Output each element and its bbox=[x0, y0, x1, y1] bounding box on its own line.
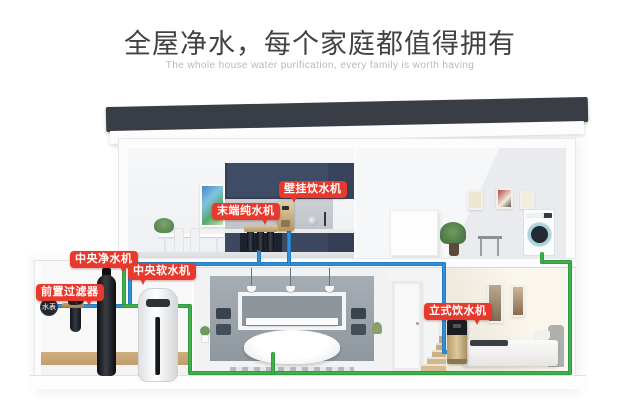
central-softener-unit bbox=[138, 288, 178, 382]
vanity-shelf bbox=[246, 318, 338, 325]
washer-panel bbox=[526, 213, 552, 218]
prefilter-bowl bbox=[70, 308, 81, 332]
plant-pot bbox=[201, 335, 209, 343]
wall-mounted-dispenser bbox=[277, 202, 294, 231]
door-handle bbox=[416, 322, 419, 325]
wall-picture bbox=[467, 190, 483, 210]
bathtub bbox=[244, 330, 340, 364]
laundry-room bbox=[356, 148, 566, 258]
plant-icon bbox=[440, 222, 466, 244]
ro-cartridge bbox=[267, 232, 274, 251]
wall-picture bbox=[496, 188, 513, 209]
softener-head-band bbox=[146, 299, 170, 307]
callout-terminal-purifier: 末端纯水机 bbox=[212, 203, 280, 220]
bathroom bbox=[194, 268, 390, 375]
callout-central-softener: 中央软水机 bbox=[128, 263, 196, 280]
washer-door bbox=[528, 223, 551, 246]
wall-picture bbox=[511, 285, 525, 317]
stair-step bbox=[427, 357, 446, 364]
page-subtitle: The whole house water purification, ever… bbox=[0, 60, 640, 71]
pipe-green-washer-nub bbox=[540, 252, 544, 264]
faucet-icon bbox=[324, 212, 326, 226]
pipe-green-top-right-run bbox=[540, 260, 572, 264]
pipe-green-bottom-run bbox=[188, 371, 572, 375]
pipe-blue-wall-unit-riser bbox=[287, 229, 291, 266]
partition-cabinet bbox=[390, 210, 438, 256]
ro-manifold bbox=[244, 225, 278, 232]
dispenser-base bbox=[447, 359, 467, 364]
chair bbox=[190, 228, 200, 253]
stool-leg bbox=[480, 239, 482, 256]
plant-icon bbox=[154, 218, 174, 233]
washing-machine bbox=[523, 209, 555, 256]
callout-floor-dispenser: 立式饮水机 bbox=[424, 303, 492, 320]
stool-leg bbox=[497, 239, 499, 256]
softener-brine-slot bbox=[155, 317, 160, 375]
pendant-lamp bbox=[251, 268, 252, 286]
towel-rack bbox=[216, 308, 231, 319]
water-meter-label: 水表 bbox=[42, 302, 56, 312]
dispenser-screen bbox=[282, 206, 289, 210]
pipe-green-riser-right bbox=[568, 260, 572, 375]
bed-pillow bbox=[534, 330, 550, 340]
callout-wall-dispenser: 壁挂饮水机 bbox=[279, 181, 347, 198]
ro-cartridge bbox=[257, 232, 264, 251]
pipe-green-down-left bbox=[188, 304, 192, 375]
bed-throw bbox=[470, 340, 508, 346]
dispenser-recess bbox=[281, 220, 290, 227]
floor-standing-dispenser bbox=[447, 320, 467, 364]
ro-cartridge bbox=[247, 232, 254, 251]
dispenser-body bbox=[447, 335, 467, 359]
interior-door bbox=[392, 281, 422, 371]
pendant-lamp bbox=[329, 268, 330, 286]
towel-rack bbox=[216, 324, 231, 335]
dispenser-screen bbox=[453, 324, 461, 328]
under-sink-ro-unit bbox=[244, 225, 278, 252]
pendant-lamp bbox=[290, 268, 291, 286]
callout-pre-filter: 前置过滤器 bbox=[36, 284, 104, 301]
wall-picture bbox=[520, 191, 534, 209]
stair-step bbox=[421, 364, 446, 371]
poster: 全屋净水，每个家庭都值得拥有 The whole house water pur… bbox=[0, 0, 640, 402]
page-title: 全屋净水，每个家庭都值得拥有 bbox=[0, 22, 640, 61]
pipe-green-tub-riser bbox=[271, 352, 275, 375]
hallway bbox=[390, 268, 446, 375]
plant-icon bbox=[372, 322, 382, 334]
towel-rack bbox=[351, 324, 366, 335]
kettle-icon bbox=[308, 216, 318, 226]
ground-slab bbox=[30, 375, 586, 389]
chair bbox=[174, 228, 184, 253]
towel-rack bbox=[351, 308, 366, 319]
plant-pot bbox=[449, 243, 459, 256]
